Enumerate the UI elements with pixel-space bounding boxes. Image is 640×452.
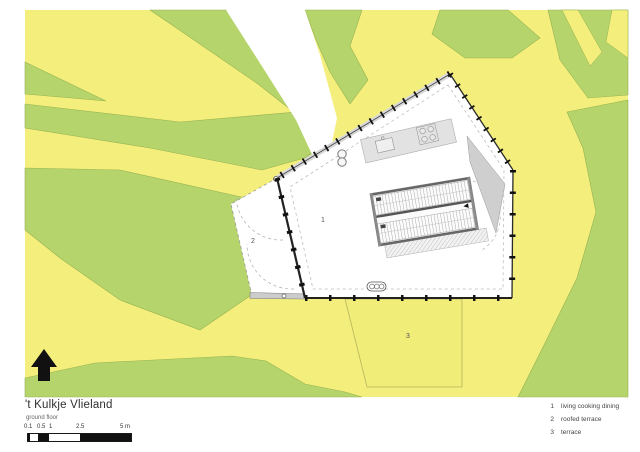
legend-num-3: 3 <box>548 429 554 436</box>
scale-bar <box>27 433 132 442</box>
legend-label-2: roofed terrace <box>561 416 601 423</box>
scale-label-0-5: 0.5 <box>37 424 45 430</box>
legend-num-2: 2 <box>548 416 554 423</box>
legend: 1 living cooking dining 2 roofed terrace… <box>548 403 619 442</box>
site-plan-svg <box>0 0 640 452</box>
legend-item-3: 3 terrace <box>548 429 619 442</box>
room-label-1: 1 <box>321 217 325 224</box>
room-label-2: 2 <box>251 238 255 245</box>
bench-icon <box>367 282 386 291</box>
legend-item-2: 2 roofed terrace <box>548 416 619 429</box>
page-title: 't Kulkje Vlieland <box>25 399 113 411</box>
scale-label-2-5: 2.5 <box>76 424 84 430</box>
drawing-sheet: 1 2 3 't Kulkje Vlieland ground floor 0.… <box>0 0 640 452</box>
page-subtitle: ground floor <box>26 415 58 421</box>
legend-num-1: 1 <box>548 403 554 410</box>
room-label-3: 3 <box>406 333 410 340</box>
legend-label-3: terrace <box>561 429 581 436</box>
scale-label-0-1: 0.1 <box>24 424 32 430</box>
legend-label-1: living cooking dining <box>561 403 619 410</box>
scale-label-1: 1 <box>49 424 52 430</box>
legend-item-1: 1 living cooking dining <box>548 403 619 416</box>
scale-label-5m: 5 m <box>120 424 130 430</box>
